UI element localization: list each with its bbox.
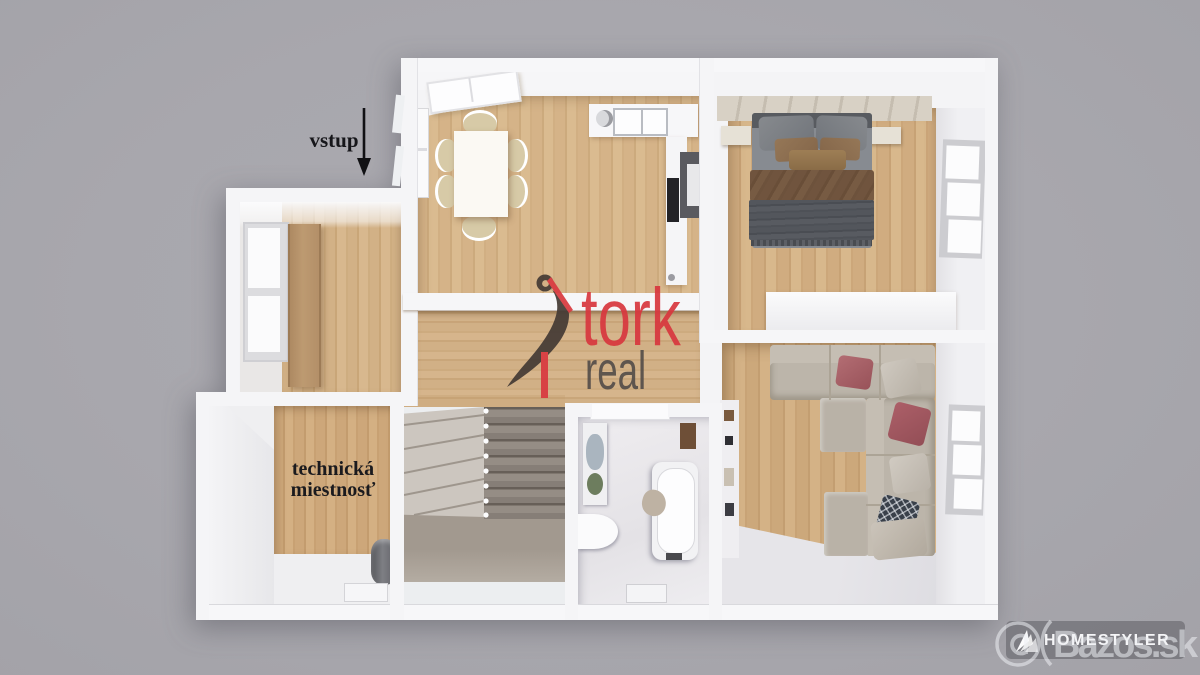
svg-text:real: real — [585, 340, 646, 401]
svg-text:Bazos.sk: Bazos.sk — [1053, 624, 1199, 666]
